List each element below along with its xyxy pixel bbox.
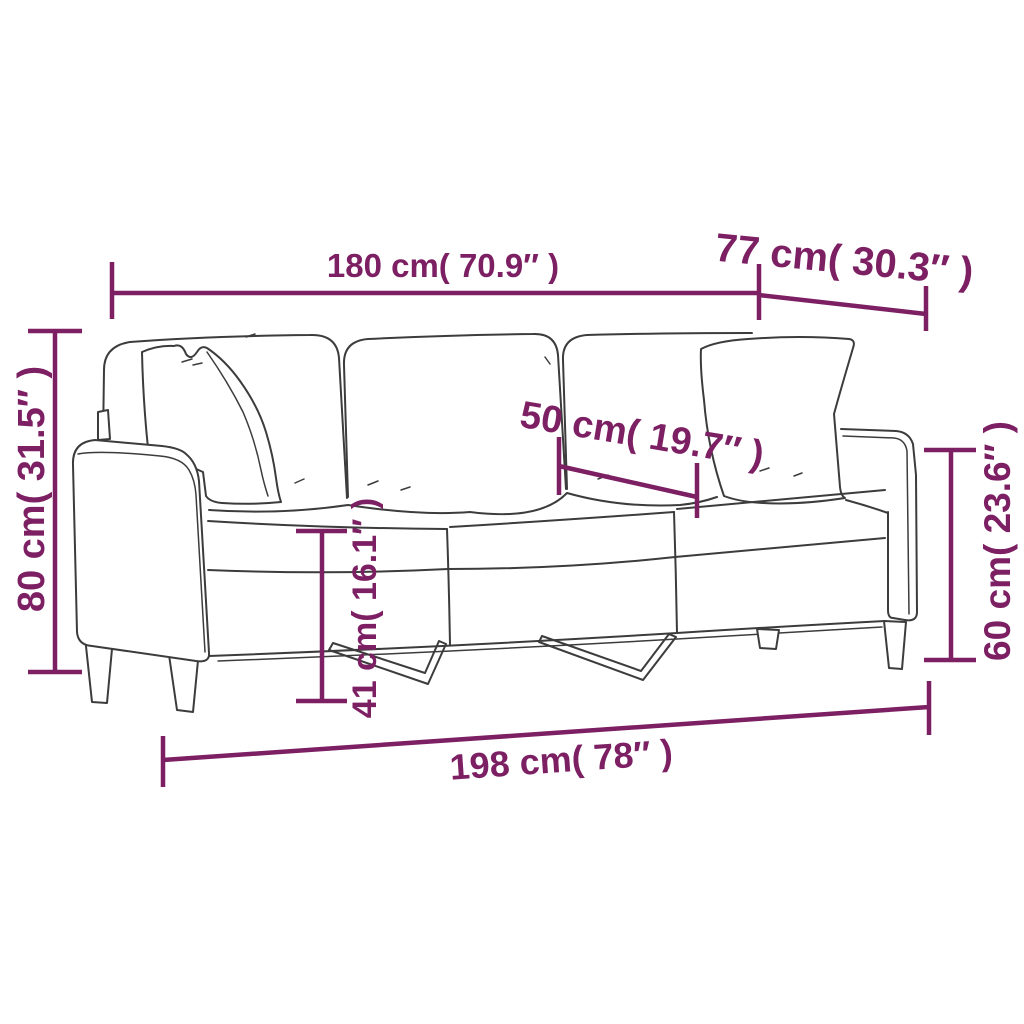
measurement-height: 80 cm( 31.5″ ) xyxy=(11,331,82,672)
measurement-total-width: 198 cm( 78″ ) xyxy=(163,681,929,788)
dimension-line-seat-height xyxy=(296,531,347,701)
right-armrest-crease xyxy=(843,436,909,614)
dimension-label-seat-height: 41 cm( 16.1″ ) xyxy=(346,498,384,718)
dimension-line-arm-height xyxy=(924,450,976,660)
dimension-line-depth xyxy=(759,286,926,331)
dimension-label-arm-height: 60 cm( 23.6″ ) xyxy=(977,421,1018,661)
measurement-inner-width: 180 cm( 70.9″ ) xyxy=(112,247,759,320)
sofa-leg-front-right xyxy=(884,621,906,669)
dimension-label-depth: 77 cm( 30.3″ ) xyxy=(713,226,975,295)
seat-back-junction-right xyxy=(846,500,888,513)
sofa-leg-back-middle xyxy=(757,629,779,649)
dimension-label-inner-width: 180 cm( 70.9″ ) xyxy=(327,247,559,284)
right-armrest xyxy=(841,429,917,620)
base-seam xyxy=(208,538,885,572)
throw-pillow-right xyxy=(701,337,854,503)
measurement-arm-height: 60 cm( 23.6″ ) xyxy=(924,421,1018,661)
seat-back-junction xyxy=(209,493,717,514)
sofa-dimension-drawing: 180 cm( 70.9″ ) 77 cm( 30.3″ ) 80 cm( 31… xyxy=(0,0,1024,1024)
dimension-diagram: 180 cm( 70.9″ ) 77 cm( 30.3″ ) 80 cm( 31… xyxy=(0,0,1024,1024)
seat-divide-left xyxy=(447,529,450,645)
back-frame-post xyxy=(98,410,110,440)
dimension-label-height: 80 cm( 31.5″ ) xyxy=(11,366,53,612)
sofa-line-art xyxy=(73,333,917,712)
measurement-seat-height: 41 cm( 16.1″ ) xyxy=(296,498,384,718)
seat-divide-right xyxy=(674,512,677,633)
left-armrest xyxy=(73,440,209,661)
seat-cushion-edge-left xyxy=(208,521,447,529)
measurement-depth: 77 cm( 30.3″ ) xyxy=(713,226,975,331)
